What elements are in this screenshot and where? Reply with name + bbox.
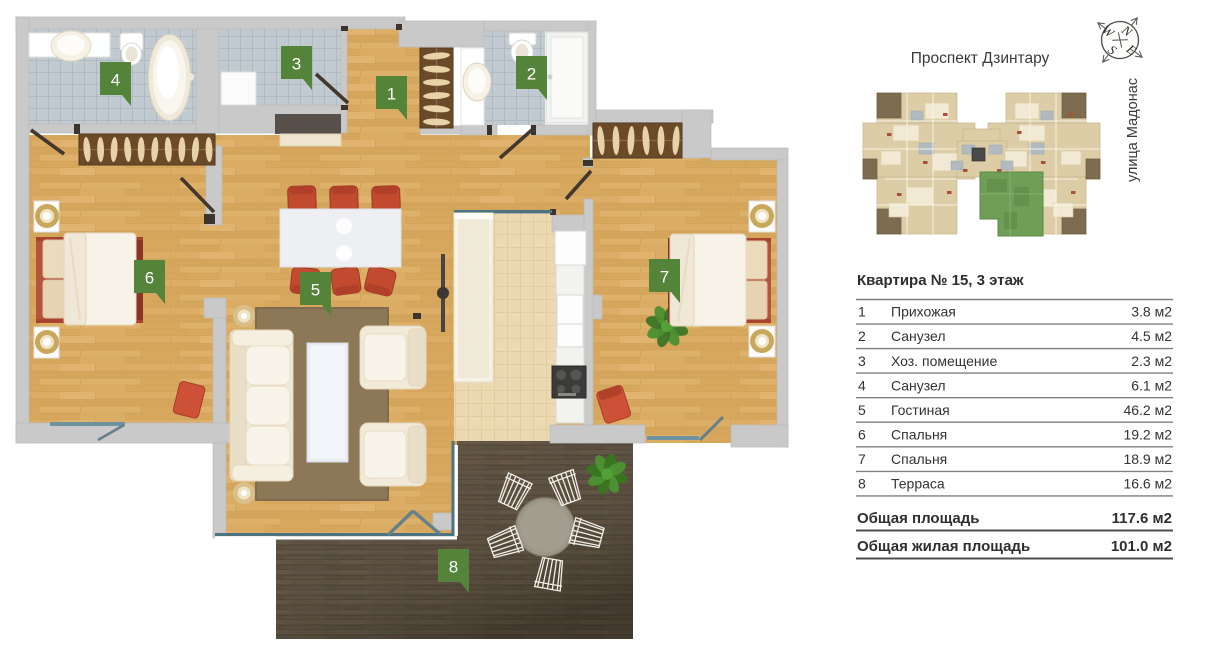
svg-text:Терраса: Терраса (891, 476, 945, 492)
svg-text:4: 4 (111, 71, 120, 90)
svg-text:Санузел: Санузел (891, 377, 946, 393)
svg-text:Хоз. помещение: Хоз. помещение (891, 353, 997, 369)
svg-text:7: 7 (858, 451, 866, 467)
svg-text:Прихожая: Прихожая (891, 304, 956, 320)
svg-text:1: 1 (858, 304, 866, 320)
svg-text:2.3 м2: 2.3 м2 (1131, 353, 1172, 369)
svg-text:8: 8 (449, 558, 458, 577)
svg-text:3.8 м2: 3.8 м2 (1131, 304, 1172, 320)
svg-text:18.9 м2: 18.9 м2 (1123, 451, 1172, 467)
svg-text:2: 2 (858, 328, 866, 344)
svg-text:5: 5 (311, 281, 320, 300)
svg-text:улица Мадонас: улица Мадонас (1125, 78, 1141, 182)
svg-text:Санузел: Санузел (891, 328, 946, 344)
svg-text:117.6 м2: 117.6 м2 (1112, 510, 1172, 527)
svg-text:16.6 м2: 16.6 м2 (1123, 476, 1172, 492)
svg-text:Квартира № 15, 3 этаж: Квартира № 15, 3 этаж (857, 272, 1024, 289)
svg-text:3: 3 (292, 55, 301, 74)
svg-text:Спальня: Спальня (891, 451, 947, 467)
svg-text:3: 3 (858, 353, 866, 369)
svg-text:5: 5 (858, 402, 866, 418)
svg-text:Проспект Дзинтару: Проспект Дзинтару (911, 50, 1050, 67)
svg-text:46.2 м2: 46.2 м2 (1123, 402, 1172, 418)
svg-text:4.5 м2: 4.5 м2 (1131, 328, 1172, 344)
svg-text:Общая площадь: Общая площадь (857, 510, 980, 527)
svg-text:19.2 м2: 19.2 м2 (1123, 426, 1172, 442)
svg-text:101.0 м2: 101.0 м2 (1111, 538, 1172, 555)
svg-text:Спальня: Спальня (891, 426, 947, 442)
svg-text:6.1 м2: 6.1 м2 (1131, 377, 1172, 393)
svg-text:7: 7 (660, 268, 669, 287)
svg-text:1: 1 (387, 85, 396, 104)
svg-text:6: 6 (145, 269, 154, 288)
svg-text:Гостиная: Гостиная (891, 402, 950, 418)
svg-text:4: 4 (858, 377, 866, 393)
svg-text:6: 6 (858, 426, 866, 442)
svg-text:2: 2 (527, 65, 536, 84)
svg-text:8: 8 (858, 476, 866, 492)
svg-text:Общая жилая площадь: Общая жилая площадь (857, 538, 1030, 555)
